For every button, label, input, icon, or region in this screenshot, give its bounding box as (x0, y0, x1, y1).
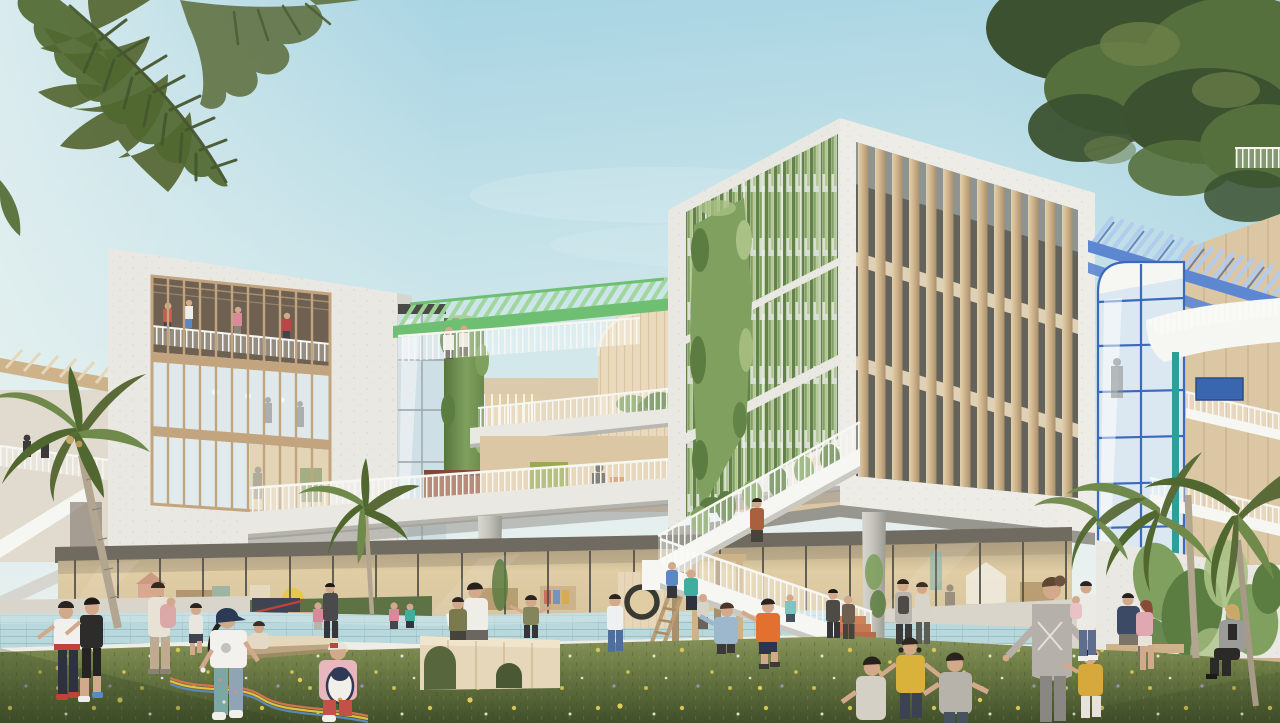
left-building-window (152, 276, 330, 516)
bench-arch-cutout (424, 646, 456, 690)
porthole-window (627, 587, 657, 617)
blue-window (1196, 378, 1243, 400)
wooden-play-bench (420, 636, 560, 690)
scene-canvas (0, 0, 1280, 723)
vine (492, 559, 508, 611)
architectural-rendering (0, 0, 1280, 723)
bench-arch-cutout (496, 663, 522, 688)
